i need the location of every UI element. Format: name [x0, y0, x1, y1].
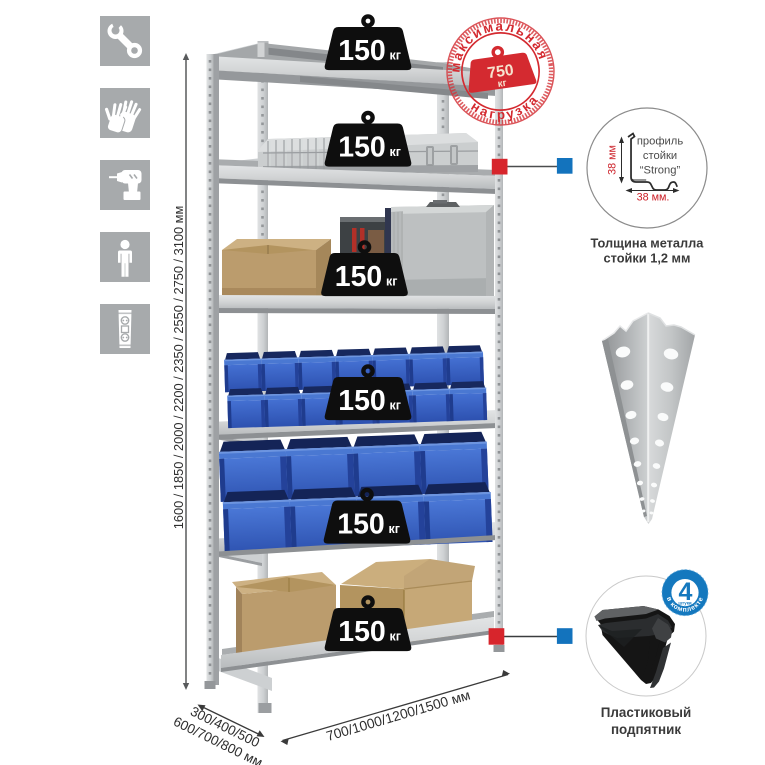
svg-text:38 мм.: 38 мм.	[637, 192, 670, 204]
svg-text:стойки: стойки	[643, 150, 677, 162]
svg-text:38 мм: 38 мм	[607, 145, 619, 175]
svg-text:стойки 1,2 мм: стойки 1,2 мм	[603, 251, 690, 266]
svg-text:1600 / 1850 / 2000 / 2200 / 23: 1600 / 1850 / 2000 / 2200 / 2350 / 2550 …	[171, 206, 186, 530]
svg-text:штуки: штуки	[678, 601, 692, 606]
svg-text:подпятник: подпятник	[611, 722, 681, 737]
svg-text:кг: кг	[497, 78, 507, 90]
svg-text:профиль: профиль	[637, 136, 683, 148]
svg-text:“Strong”: “Strong”	[640, 165, 681, 177]
svg-text:Толщина металла: Толщина металла	[591, 236, 705, 251]
svg-text:Пластиковый: Пластиковый	[601, 705, 691, 720]
